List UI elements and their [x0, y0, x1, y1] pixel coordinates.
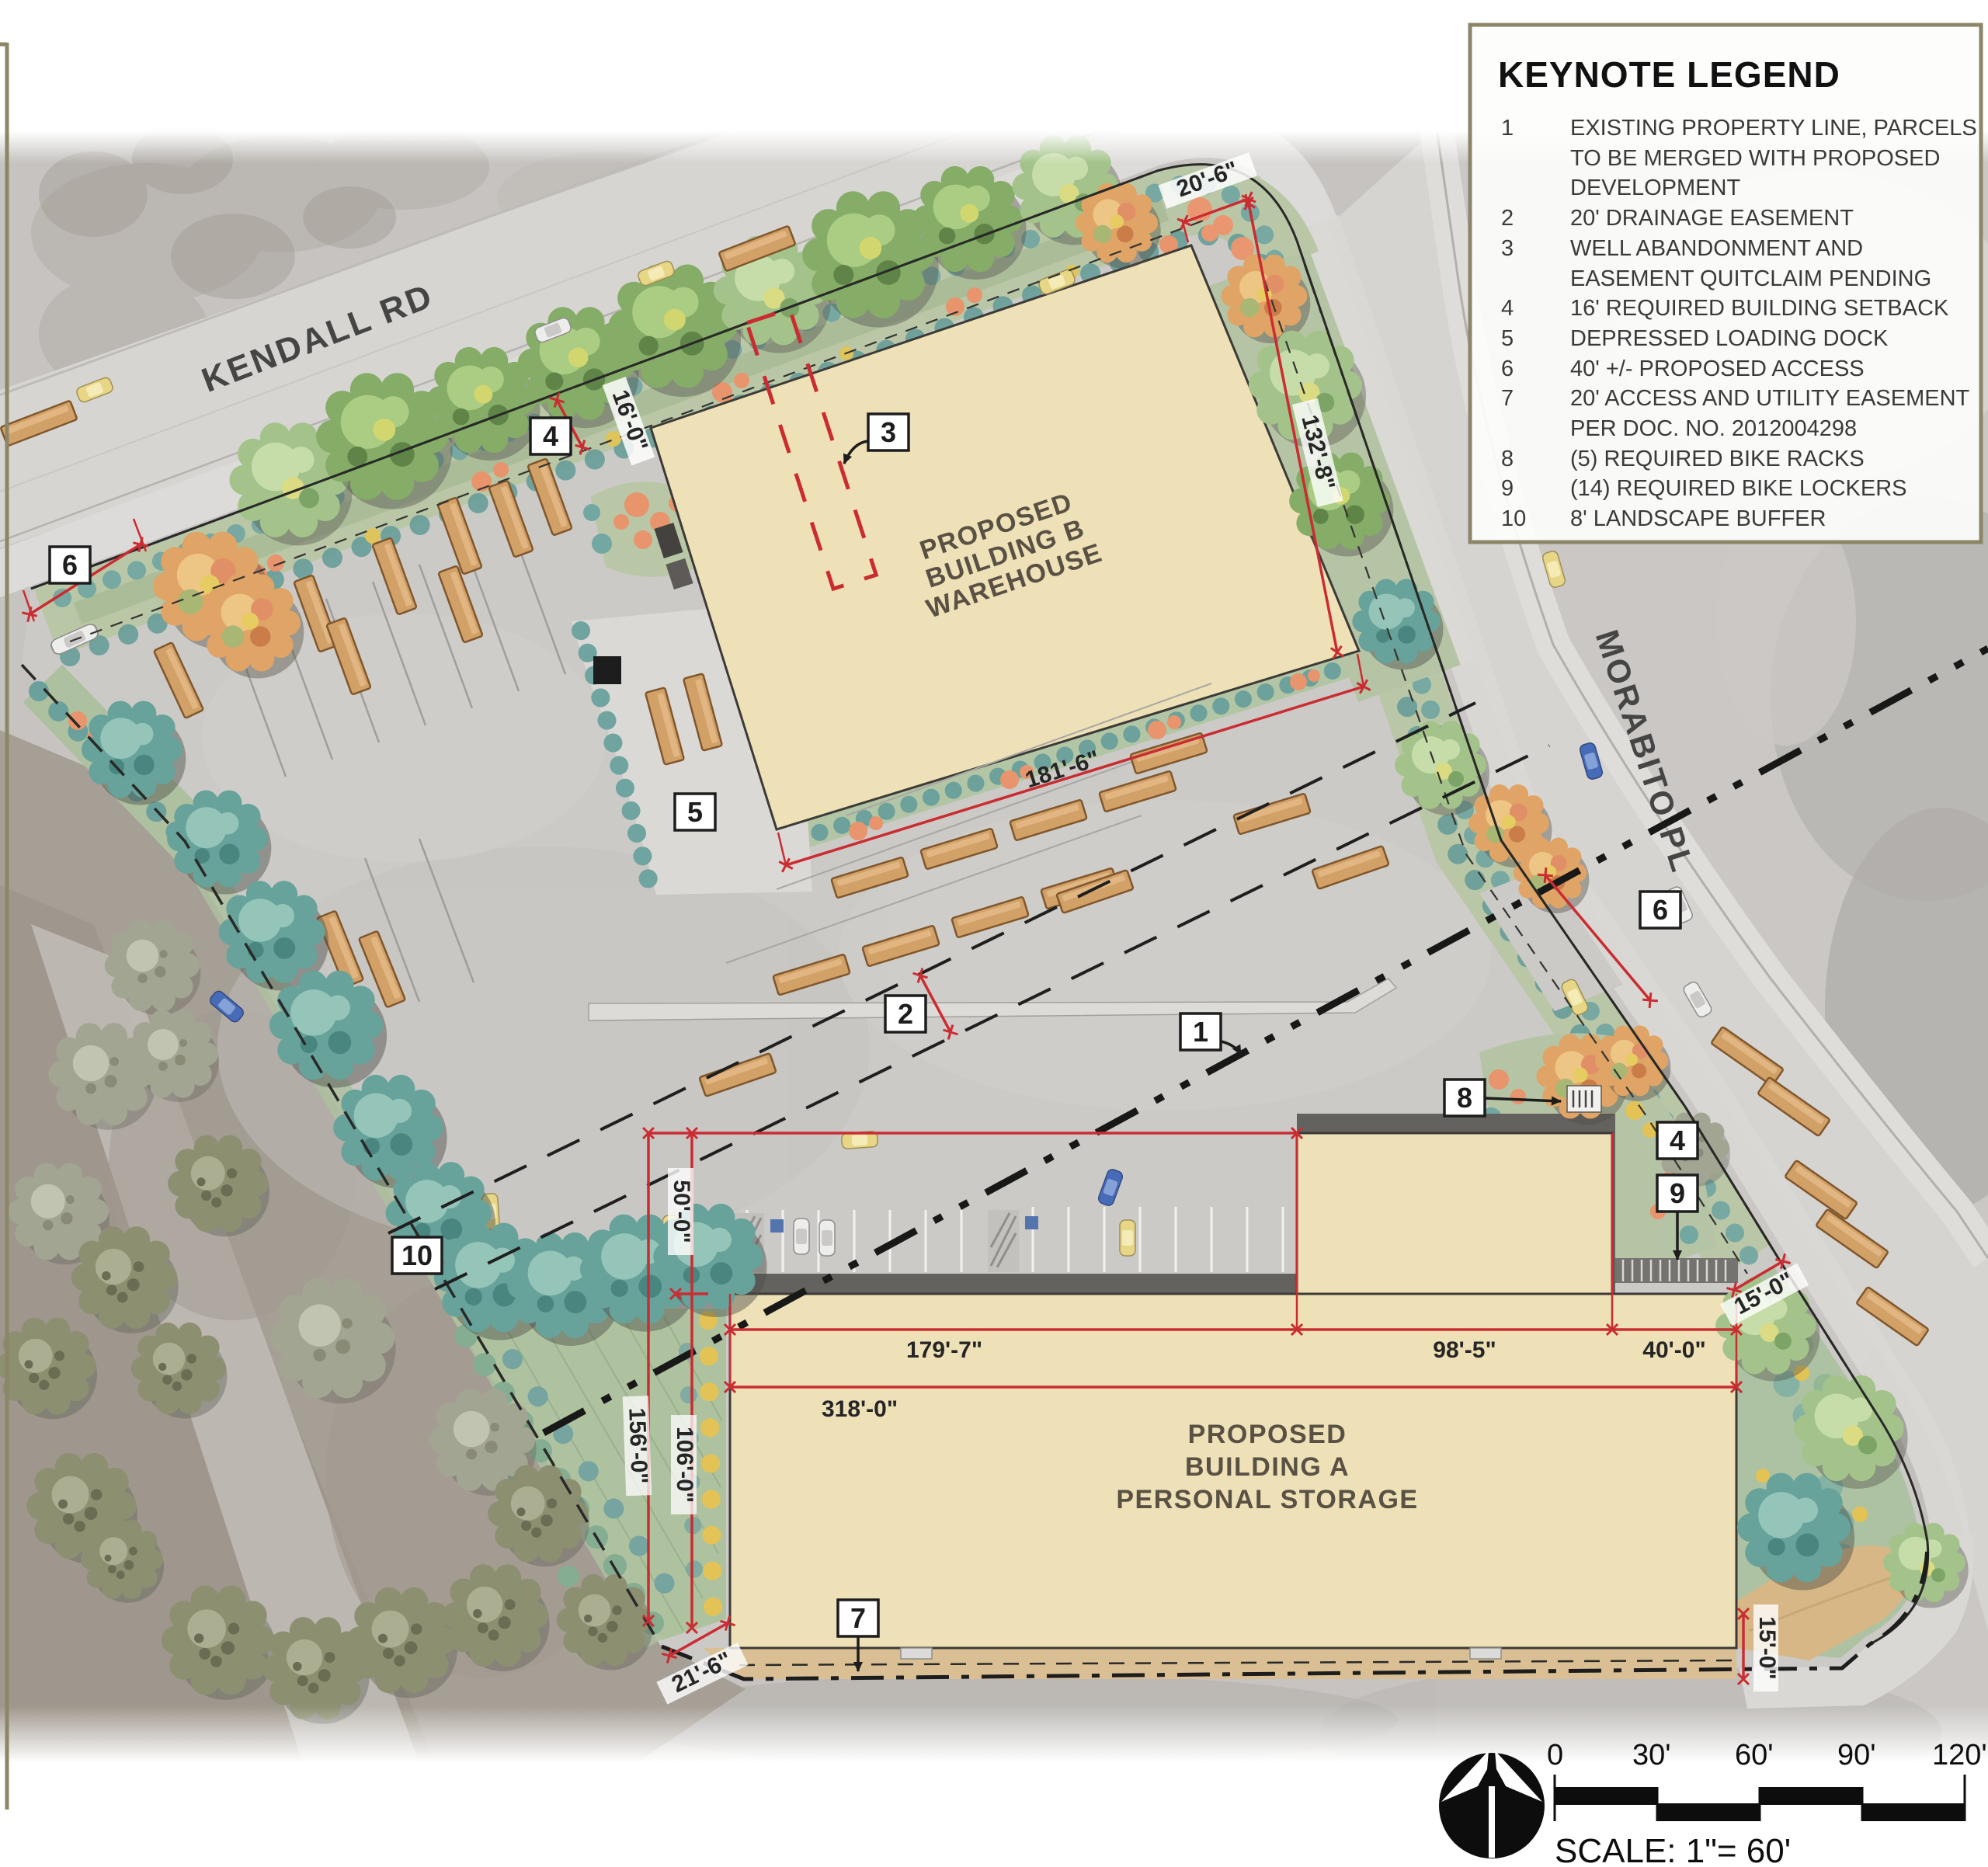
svg-text:1: 1 — [1501, 116, 1514, 141]
svg-text:8: 8 — [1501, 447, 1514, 471]
svg-text:7: 7 — [1501, 386, 1514, 411]
svg-text:(14) REQUIRED BIKE LOCKERS: (14) REQUIRED BIKE LOCKERS — [1570, 476, 1907, 501]
svg-text:EXISTING PROPERTY LINE, PARCEL: EXISTING PROPERTY LINE, PARCELS — [1570, 116, 1977, 141]
svg-text:3: 3 — [1501, 236, 1514, 261]
svg-text:EASEMENT QUITCLAIM PENDING: EASEMENT QUITCLAIM PENDING — [1570, 266, 1931, 291]
svg-text:TO BE MERGED WITH PROPOSED: TO BE MERGED WITH PROPOSED — [1570, 146, 1940, 171]
svg-text:DEPRESSED LOADING DOCK: DEPRESSED LOADING DOCK — [1570, 326, 1889, 351]
svg-text:WELL ABANDONMENT AND: WELL ABANDONMENT AND — [1570, 236, 1863, 261]
svg-text:0: 0 — [1547, 1739, 1563, 1771]
svg-text:2: 2 — [1501, 206, 1514, 231]
svg-text:90': 90' — [1837, 1739, 1876, 1771]
svg-text:(5) REQUIRED BIKE RACKS: (5) REQUIRED BIKE RACKS — [1570, 447, 1865, 471]
svg-text:8' LANDSCAPE BUFFER: 8' LANDSCAPE BUFFER — [1570, 506, 1826, 531]
svg-text:20' DRAINAGE EASEMENT: 20' DRAINAGE EASEMENT — [1570, 206, 1854, 231]
svg-text:DEVELOPMENT: DEVELOPMENT — [1570, 176, 1740, 200]
svg-text:20' ACCESS AND UTILITY EASEMEN: 20' ACCESS AND UTILITY EASEMENT — [1570, 386, 1970, 411]
svg-text:16' REQUIRED BUILDING SETBACK: 16' REQUIRED BUILDING SETBACK — [1570, 296, 1949, 321]
svg-text:60': 60' — [1735, 1739, 1774, 1771]
svg-text:6: 6 — [1501, 356, 1514, 381]
svg-text:PER DOC. NO. 2012004298: PER DOC. NO. 2012004298 — [1570, 416, 1857, 441]
svg-text:120': 120' — [1932, 1739, 1987, 1771]
svg-text:5: 5 — [1501, 326, 1514, 351]
svg-text:10: 10 — [1501, 506, 1526, 531]
svg-text:30': 30' — [1632, 1739, 1671, 1771]
svg-text:4: 4 — [1501, 296, 1514, 321]
svg-text:9: 9 — [1501, 476, 1514, 501]
svg-text:SCALE: 1"= 60': SCALE: 1"= 60' — [1555, 1832, 1791, 1867]
svg-text:KEYNOTE LEGEND: KEYNOTE LEGEND — [1498, 54, 1840, 95]
svg-text:40' +/- PROPOSED ACCESS: 40' +/- PROPOSED ACCESS — [1570, 356, 1865, 381]
